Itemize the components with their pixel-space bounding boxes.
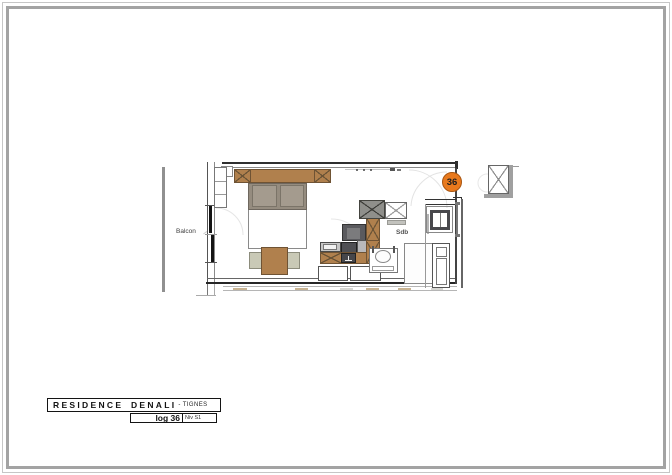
window-tick-bottom [205, 262, 217, 263]
closet-white [385, 202, 407, 219]
bathroom-label: Sdb [396, 230, 408, 237]
duct-divider [440, 213, 441, 227]
bathroom-cabinet-top-box [436, 247, 447, 257]
oven-handle-horizontal [345, 260, 352, 261]
kitchen-sink [323, 244, 337, 250]
unit-cell: log 36 [130, 413, 183, 423]
topwall-dot-3 [370, 169, 372, 171]
wall-left-outer [207, 162, 208, 292]
level-cell: Niv S1 [183, 413, 217, 423]
left-shelf-divider-2 [215, 194, 226, 195]
facade-tick-3 [340, 288, 353, 291]
washbasin-tap-left [372, 246, 374, 253]
facade-tick-4 [366, 288, 379, 291]
balcony-label: Balcon [176, 229, 196, 236]
residence-name: RESIDENCE DENALI [53, 400, 176, 410]
entry-wall-stub-top-2 [425, 204, 456, 205]
kitchen-cabinet-x-left [321, 253, 342, 263]
wall-left-stub-below-3 [196, 295, 216, 296]
facade-tick-1 [233, 288, 247, 291]
bed-pillow-right [280, 185, 304, 207]
balcony-railing [162, 167, 165, 292]
headboard-x-right [314, 170, 330, 182]
window-sash-upper [209, 206, 212, 233]
dining-table [261, 247, 288, 275]
washbasin-shelf [372, 266, 394, 271]
residence-location: - TIGNES [178, 402, 207, 408]
headboard-x-left [235, 170, 251, 182]
topwall-dash-2 [397, 169, 401, 171]
elevator-wall-bottom [484, 194, 513, 198]
window-swing-arc [216, 208, 243, 235]
tall-cabinet-x-top [367, 219, 379, 241]
closet-label-strip [387, 220, 406, 225]
topwall-dash-1 [390, 168, 395, 171]
floor-plan-page: { "document": { "type": "apartment floor… [0, 0, 672, 475]
entry-door-leaf-cap-bottom [455, 234, 460, 237]
chair-right [286, 252, 300, 269]
title-block-row-unit: log 36 Niv S1 [130, 413, 217, 423]
left-shelf [214, 167, 227, 208]
duct-shaft [430, 210, 450, 230]
entry-door-leaf [456, 203, 458, 236]
title-block-row-residence: RESIDENCE DENALI - TIGNES [47, 398, 221, 412]
window-sash-lower [211, 235, 214, 262]
wardrobe-gray [359, 200, 385, 219]
facade-tick-5 [398, 288, 411, 291]
topwall-dot-2 [363, 169, 365, 171]
window-tick-mid [205, 234, 217, 235]
topwall-dot-1 [356, 169, 358, 171]
entrance-swing-arc-1 [409, 170, 447, 208]
kitchen-plinth-left [318, 266, 348, 281]
entry-wall-stub-top-1 [425, 199, 456, 200]
left-shelf-divider-1 [215, 181, 226, 182]
bed-pillow-left [252, 185, 277, 207]
entry-right-outer-wall [461, 199, 463, 288]
kitchen-oven [341, 253, 356, 263]
entrance-swing-arc-2 [411, 172, 447, 206]
entry-door-leaf-cap-top [455, 202, 460, 205]
wall-left-stub-below-2 [214, 284, 215, 295]
facade-tick-2 [295, 288, 308, 291]
wall-top-inner-line [222, 167, 455, 168]
unit-number-badge: 36 [442, 172, 462, 192]
washbasin-tap-right [393, 246, 395, 253]
elevator-shaft [488, 165, 509, 194]
kitchen-upper-dark-panel [347, 228, 360, 239]
bathroom-cabinet-tall-box [436, 258, 447, 285]
bed-headboard [234, 169, 331, 183]
washbasin-bowl [375, 250, 391, 263]
wall-top [222, 162, 458, 164]
